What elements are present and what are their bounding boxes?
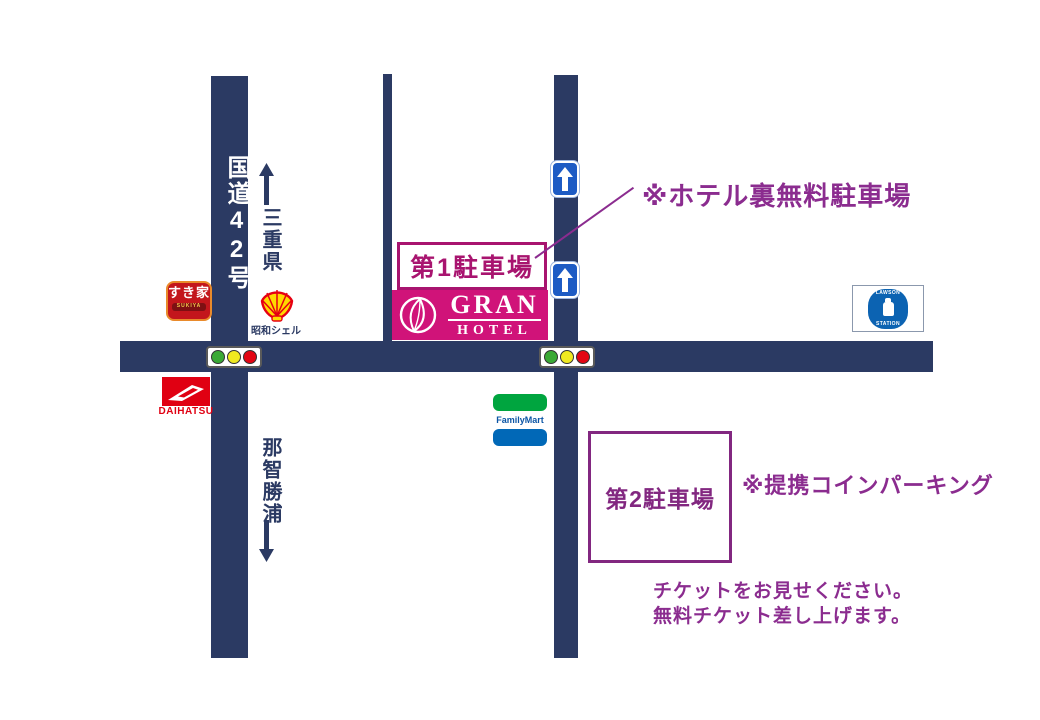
daihatsu-d-icon — [166, 381, 206, 403]
parking2-note: ※提携コインパーキング — [742, 468, 994, 500]
lawson-logo: LAWSON STATION — [852, 285, 924, 332]
parking2-box: 第2駐車場 — [588, 431, 732, 563]
daihatsu-logo — [162, 377, 210, 406]
parking1-label: 第1駐車場 — [410, 248, 534, 284]
traffic-light-right-icon — [539, 346, 595, 368]
familymart-blue-bar — [493, 429, 547, 446]
gran-leaf-icon — [395, 292, 441, 338]
ticket-note-line2: 無料チケット差し上げます。 — [653, 604, 913, 629]
sukiya-sublabel: SUKIYA — [172, 303, 206, 311]
yellow-lamp-icon — [227, 350, 241, 364]
gran-hotel-logo: GRAN HOTEL — [392, 290, 548, 340]
familymart-green-bar — [493, 394, 547, 411]
shell-label: 昭和シェル — [241, 322, 311, 337]
lawson-label-top: LAWSON — [876, 291, 900, 296]
yellow-lamp-icon — [560, 350, 574, 364]
lawson-label-bottom: STATION — [876, 322, 900, 327]
road-vertical-middle — [383, 74, 392, 342]
lawson-emblem-icon: LAWSON STATION — [868, 289, 908, 329]
daihatsu-label: DAIHATSU — [148, 406, 224, 417]
access-map-canvas: 国道42号 三重県 那智勝浦 すき家 SUKIYA 昭和シェル DAIHATSU — [0, 0, 1040, 720]
parking1-box: 第1駐車場 — [397, 242, 547, 290]
gran-hotel-subname: HOTEL — [457, 323, 532, 338]
route-42-label: 国道42号 — [211, 153, 248, 293]
parking1-note: ※ホテル裏無料駐車場 — [642, 176, 911, 213]
familymart-logo: FamilyMart — [493, 394, 547, 446]
gran-hotel-name: GRAN — [448, 292, 541, 321]
familymart-label: FamilyMart — [493, 411, 547, 429]
north-direction-label: 三重県 — [254, 207, 280, 273]
north-arrow-icon — [259, 163, 274, 205]
milk-bottle-icon — [883, 302, 894, 316]
shell-icon — [258, 287, 296, 322]
south-direction-label: 那智勝浦 — [254, 437, 280, 525]
red-lamp-icon — [576, 350, 590, 364]
parking1-callout-line — [534, 187, 634, 259]
one-way-up-sign-1-icon — [551, 161, 579, 197]
one-way-up-sign-2-icon — [551, 262, 579, 298]
sukiya-label: すき家 — [168, 283, 210, 303]
parking2-label: 第2駐車場 — [605, 480, 715, 514]
ticket-note: チケットをお見せください。 無料チケット差し上げます。 — [653, 579, 913, 629]
traffic-light-left-icon — [206, 346, 262, 368]
ticket-note-line1: チケットをお見せください。 — [653, 579, 913, 604]
green-lamp-icon — [211, 350, 225, 364]
red-lamp-icon — [243, 350, 257, 364]
sukiya-logo: すき家 SUKIYA — [166, 281, 212, 321]
south-arrow-icon — [259, 520, 274, 562]
green-lamp-icon — [544, 350, 558, 364]
